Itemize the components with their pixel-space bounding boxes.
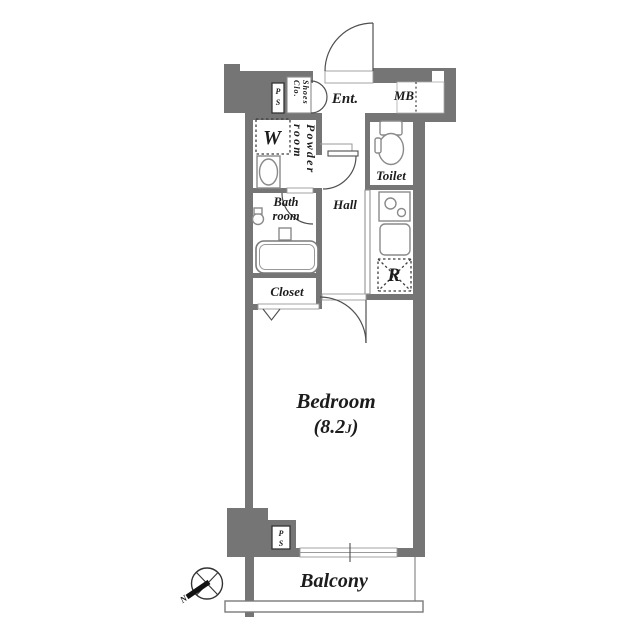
bedroom-size-open: (8.2 bbox=[314, 416, 346, 438]
powder-label-line2: room bbox=[291, 124, 305, 159]
closet-door-panel bbox=[258, 304, 319, 309]
washer-label: W bbox=[263, 127, 282, 149]
bath-label-line1: Bath bbox=[272, 195, 298, 209]
wall bbox=[432, 68, 444, 71]
stove-burner-large-icon bbox=[385, 198, 396, 209]
bath-faucet-stem-icon bbox=[254, 208, 262, 214]
powder-room-label: Powderroom bbox=[291, 124, 318, 175]
washbasin-bowl-icon bbox=[260, 159, 278, 185]
hall-label: Hall bbox=[332, 197, 357, 212]
entrance-door-swing bbox=[325, 23, 373, 71]
toilet-bowl-icon bbox=[379, 134, 404, 165]
toilet-label: Toilet bbox=[376, 168, 406, 183]
kitchen-partition-wall bbox=[365, 190, 370, 294]
bath-label-line2: room bbox=[272, 209, 299, 223]
ps-bottom-p: P bbox=[279, 529, 284, 538]
ps-bottom-label: PS bbox=[279, 529, 284, 548]
bath-faucet-icon bbox=[253, 214, 264, 225]
wall bbox=[365, 122, 370, 185]
wall bbox=[227, 508, 268, 557]
bathtub-icon bbox=[256, 241, 318, 273]
wall bbox=[245, 304, 258, 310]
balcony-railing bbox=[225, 601, 423, 612]
ps-bottom-s: S bbox=[279, 539, 284, 548]
wall bbox=[365, 113, 456, 122]
floor-plan-page: N Ent. MB Toilet Hall Closet W R Balcony… bbox=[0, 0, 640, 639]
stove-burner-small-icon bbox=[398, 209, 406, 217]
wall bbox=[373, 68, 432, 83]
wall bbox=[413, 122, 425, 557]
wall bbox=[296, 548, 300, 557]
powder-bath-threshold bbox=[287, 188, 313, 193]
wall bbox=[245, 113, 253, 508]
fridge-label: R bbox=[387, 265, 401, 286]
toilet-flush-icon bbox=[375, 138, 381, 153]
wall bbox=[365, 185, 413, 190]
closet-label: Closet bbox=[270, 284, 304, 299]
bedroom-door-threshold bbox=[322, 294, 366, 300]
ps-top-s: S bbox=[276, 98, 281, 107]
walls bbox=[224, 64, 456, 617]
entrance-threshold bbox=[325, 71, 373, 83]
shoes-label-line2: Clo. bbox=[292, 80, 301, 98]
bedroom-label: Bedroom bbox=[295, 389, 375, 413]
shoes-label-line1: Shoes bbox=[301, 80, 310, 105]
mb-notch bbox=[432, 71, 444, 82]
meter-box-label: MB bbox=[393, 88, 415, 103]
balcony-label: Balcony bbox=[299, 570, 368, 592]
wall bbox=[397, 548, 425, 557]
entrance-label: Ent. bbox=[331, 91, 358, 107]
powder-label-line1: Powder bbox=[304, 124, 318, 175]
wall bbox=[224, 64, 240, 72]
ps-top-p: P bbox=[276, 87, 281, 96]
wall bbox=[366, 294, 413, 300]
floor-plan-svg: N Ent. MB Toilet Hall Closet W R Balcony… bbox=[0, 0, 640, 639]
wall bbox=[224, 71, 268, 113]
kitchen-sink-icon bbox=[380, 224, 410, 255]
bath-door-post-icon bbox=[279, 228, 291, 240]
bath-room-label: Bathroom bbox=[272, 195, 299, 223]
shoes-closet-door-lower bbox=[311, 97, 327, 113]
bedroom-size-close: ) bbox=[350, 416, 359, 438]
bedroom-size-label: (8.2J) bbox=[314, 416, 359, 438]
compass: N bbox=[177, 568, 222, 606]
bedroom-door-swing bbox=[320, 297, 366, 343]
closet-door-mark bbox=[263, 309, 280, 320]
powder-room-door-leaf bbox=[328, 151, 358, 156]
powder-room-door-swing bbox=[323, 156, 356, 189]
